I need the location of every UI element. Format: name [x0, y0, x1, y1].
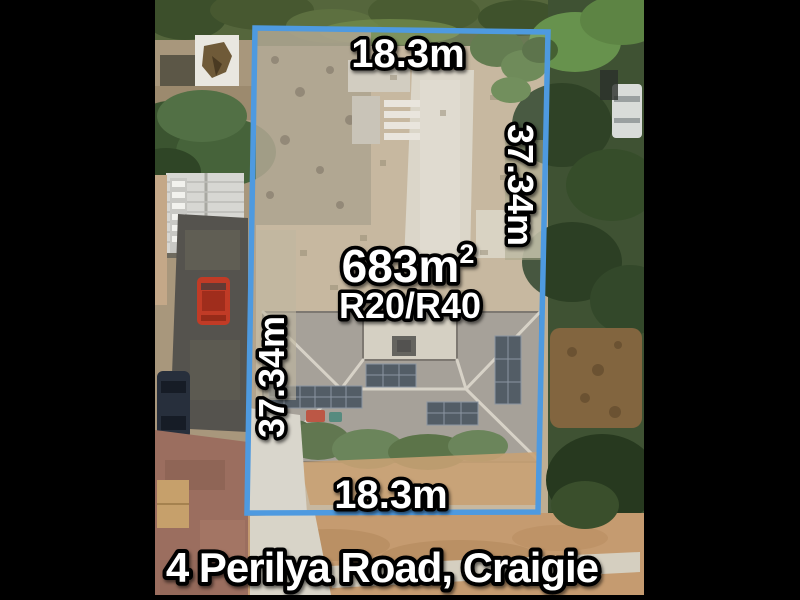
red-car — [197, 277, 230, 325]
aerial-photo-canvas: 18.3m 37.34m 683m2 R20/R40 37.34m 18.3m … — [0, 0, 800, 600]
side-wall — [155, 175, 167, 305]
label-address: 4 Perilya Road, Craigie — [166, 544, 598, 591]
dark-car — [157, 371, 190, 439]
label-right-depth: 37.34m — [500, 124, 541, 246]
white-pad-with-debris — [195, 35, 239, 87]
label-zoning: R20/R40 — [339, 285, 481, 326]
label-area-superscript: 2 — [459, 239, 474, 269]
label-left-depth: 37.34m — [251, 316, 292, 438]
tan-roof-bottom-left — [157, 480, 189, 528]
dirt-patch-right — [550, 328, 642, 428]
label-bottom-width: 18.3m — [334, 473, 447, 517]
bush-bottom-right — [551, 481, 619, 529]
property-listing-image: 18.3m 37.34m 683m2 R20/R40 37.34m 18.3m … — [0, 0, 800, 600]
label-top-width: 18.3m — [351, 32, 464, 76]
